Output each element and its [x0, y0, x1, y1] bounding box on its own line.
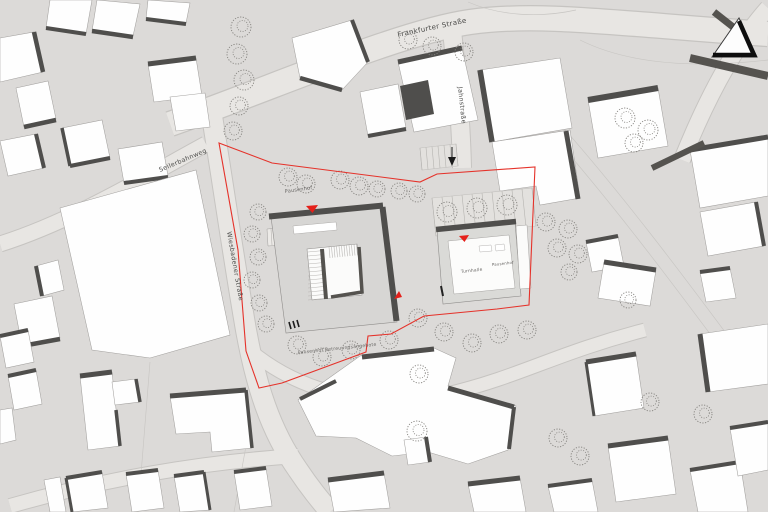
building: [170, 93, 210, 131]
building: [400, 80, 434, 120]
site-plan-svg: Frankfurter Straße Seilerbahnweg Wiesbad…: [0, 0, 768, 512]
building: [588, 88, 668, 158]
building: [598, 262, 656, 306]
building: [126, 470, 164, 512]
building: [46, 0, 92, 34]
main-building: [269, 206, 397, 334]
building: [234, 468, 272, 510]
building: [118, 142, 168, 183]
building: [62, 120, 110, 166]
building: [700, 202, 764, 256]
gym-building: [436, 222, 531, 305]
building: [608, 438, 676, 502]
building: [700, 324, 768, 392]
building: [146, 0, 190, 24]
building: [480, 58, 572, 142]
building: [586, 354, 644, 416]
building: [8, 370, 42, 410]
building: [0, 330, 34, 368]
building: [0, 134, 44, 176]
building: [548, 480, 598, 512]
building: [468, 478, 526, 512]
building: [360, 84, 406, 136]
building: [700, 268, 736, 302]
building: [112, 379, 140, 405]
building: [92, 0, 140, 37]
building: [404, 437, 430, 465]
building: [328, 473, 390, 512]
building: [66, 472, 108, 512]
site-plan-page: Frankfurter Straße Seilerbahnweg Wiesbad…: [0, 0, 768, 512]
building: [174, 472, 210, 512]
